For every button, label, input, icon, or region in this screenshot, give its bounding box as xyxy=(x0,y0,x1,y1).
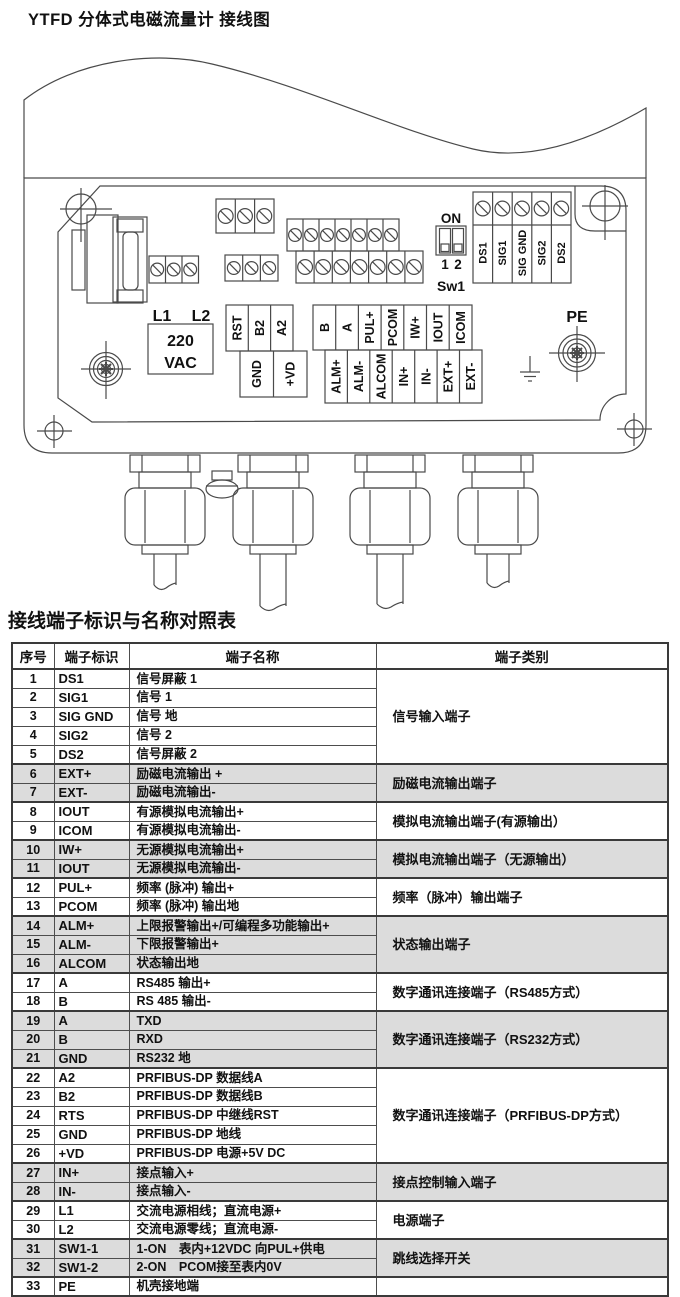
terminal-name: 信号 地 xyxy=(129,707,376,726)
power-l1-label: L1 xyxy=(153,308,172,325)
terminal-name: 有源模拟电流输出+ xyxy=(129,802,376,821)
row-no: 4 xyxy=(12,726,54,745)
terminal-label-pcom: PCOM xyxy=(386,309,400,347)
terminal-id: A2 xyxy=(54,1068,129,1087)
table-title: 接线端子标识与名称对照表 xyxy=(8,606,680,633)
cable-gland-4 xyxy=(458,455,538,587)
pe-screw xyxy=(549,326,605,382)
row-no: 12 xyxy=(12,878,54,897)
row-no: 25 xyxy=(12,1125,54,1144)
terminal-name: PRFIBUS-DP 中继线RST xyxy=(129,1106,376,1125)
terminal-id: EXT+ xyxy=(54,764,129,783)
terminal-category: 频率（脉冲）输出端子 xyxy=(376,878,668,916)
row-no: 18 xyxy=(12,992,54,1011)
terminal-category: 接点控制输入端子 xyxy=(376,1163,668,1201)
dip-switch-sw1 xyxy=(436,226,466,255)
terminal-id: L2 xyxy=(54,1220,129,1239)
terminal-id: SIG1 xyxy=(54,688,129,707)
table-row: 19ATXD数字通讯连接端子（RS232方式） xyxy=(12,1011,668,1030)
row-no: 29 xyxy=(12,1201,54,1220)
terminal-label-b: B xyxy=(318,323,332,332)
header-no: 序号 xyxy=(12,643,54,669)
terminal-label-ds1: DS1 xyxy=(478,242,490,263)
terminal-label-iout: IOUT xyxy=(431,312,445,342)
terminal-label-ext-minus: EXT- xyxy=(464,363,478,391)
cable-gland-2 xyxy=(233,455,313,610)
pe-label: PE xyxy=(566,309,588,326)
terminal-label-in-plus: IN+ xyxy=(397,367,411,387)
terminal-name: 无源模拟电流输出- xyxy=(129,859,376,878)
table-row: 8IOUT有源模拟电流输出+模拟电流输出端子(有源输出） xyxy=(12,802,668,821)
row-no: 19 xyxy=(12,1011,54,1030)
table-row: 22A2PRFIBUS-DP 数据线A数字通讯连接端子（PRFIBUS-DP方式… xyxy=(12,1068,668,1087)
row-no: 30 xyxy=(12,1220,54,1239)
terminal-name: 信号屏蔽 2 xyxy=(129,745,376,764)
terminal-block-io-upper xyxy=(287,219,399,251)
terminal-id: B xyxy=(54,1030,129,1049)
terminal-name: 机壳接地端 xyxy=(129,1277,376,1296)
terminal-label-icom: ICOM xyxy=(454,311,468,344)
terminal-name: 交流电源零线；直流电源- xyxy=(129,1220,376,1239)
terminal-name: RXD xyxy=(129,1030,376,1049)
terminal-name: RS485 输出+ xyxy=(129,973,376,992)
table-row: 17ARS485 输出+数字通讯连接端子（RS485方式） xyxy=(12,973,668,992)
terminal-name: 2-ON PCOM接至表内0V xyxy=(129,1258,376,1277)
terminal-id: SIG2 xyxy=(54,726,129,745)
terminal-id: RTS xyxy=(54,1106,129,1125)
row-no: 15 xyxy=(12,935,54,954)
terminal-id: PCOM xyxy=(54,897,129,916)
row-no: 2 xyxy=(12,688,54,707)
voltage-unit: VAC xyxy=(164,355,197,372)
table-row: 1DS1信号屏蔽 1信号输入端子 xyxy=(12,669,668,688)
terminal-label-sig2: SIG2 xyxy=(536,240,548,265)
terminal-label-vd: +VD xyxy=(284,362,298,387)
terminal-id: PUL+ xyxy=(54,878,129,897)
terminal-label-gnd: GND xyxy=(250,360,264,388)
table-header-row: 序号 端子标识 端子名称 端子类别 xyxy=(12,643,668,669)
terminal-name: 上限报警输出+/可编程多功能输出+ xyxy=(129,916,376,935)
dip-pos1-label: 1 xyxy=(441,257,449,272)
row-no: 27 xyxy=(12,1163,54,1182)
row-no: 23 xyxy=(12,1087,54,1106)
row-no: 17 xyxy=(12,973,54,992)
row-no: 33 xyxy=(12,1277,54,1296)
mounting-hole-bottom-left xyxy=(37,415,72,448)
row-no: 3 xyxy=(12,707,54,726)
row-no: 31 xyxy=(12,1239,54,1258)
terminal-id: DS1 xyxy=(54,669,129,688)
terminal-id: SW1-1 xyxy=(54,1239,129,1258)
terminal-id: IOUT xyxy=(54,859,129,878)
manual-page: { "page": { "title": "YTFD 分体式电磁流量计 接线图"… xyxy=(0,0,680,1297)
terminal-id: PE xyxy=(54,1277,129,1296)
terminal-category: 信号输入端子 xyxy=(376,669,668,764)
terminal-id: DS2 xyxy=(54,745,129,764)
terminal-label-iw: IW+ xyxy=(409,316,423,339)
terminal-id: IW+ xyxy=(54,840,129,859)
terminal-name: RS232 地 xyxy=(129,1049,376,1068)
terminal-name: 接点输入+ xyxy=(129,1163,376,1182)
row-no: 6 xyxy=(12,764,54,783)
terminal-id: IOUT xyxy=(54,802,129,821)
terminal-name: 接点输入- xyxy=(129,1182,376,1201)
row-no: 13 xyxy=(12,897,54,916)
terminal-label-rst: RST xyxy=(230,315,244,340)
terminal-name: 状态输出地 xyxy=(129,954,376,973)
terminal-id: +VD xyxy=(54,1144,129,1163)
terminal-id: SW1-2 xyxy=(54,1258,129,1277)
terminal-name: TXD xyxy=(129,1011,376,1030)
terminal-name: PRFIBUS-DP 数据线A xyxy=(129,1068,376,1087)
terminal-label-a: A xyxy=(340,323,354,332)
row-no: 22 xyxy=(12,1068,54,1087)
terminal-category: 数字通讯连接端子（PRFIBUS-DP方式） xyxy=(376,1068,668,1163)
header-id: 端子标识 xyxy=(54,643,129,669)
earth-ground-icon xyxy=(520,356,540,381)
voltage-value: 220 xyxy=(167,333,194,350)
terminal-id: SIG GND xyxy=(54,707,129,726)
terminal-id: EXT- xyxy=(54,783,129,802)
terminal-label-b2: B2 xyxy=(253,320,267,336)
panel-screw-left xyxy=(81,341,131,399)
row-no: 26 xyxy=(12,1144,54,1163)
terminal-category xyxy=(376,1277,668,1296)
terminal-category: 模拟电流输出端子（无源输出） xyxy=(376,840,668,878)
terminal-name: 励磁电流输出 + xyxy=(129,764,376,783)
terminal-name: 信号屏蔽 1 xyxy=(129,669,376,688)
terminal-category: 模拟电流输出端子(有源输出） xyxy=(376,802,668,840)
terminal-name: 有源模拟电流输出- xyxy=(129,821,376,840)
terminal-label-ext-plus: EXT+ xyxy=(442,361,456,393)
terminal-block-left xyxy=(149,256,199,283)
terminal-name: 1-ON 表内+12VDC 向PUL+供电 xyxy=(129,1239,376,1258)
terminal-label-alm-minus: ALM- xyxy=(352,361,366,392)
terminal-id: IN+ xyxy=(54,1163,129,1182)
table-row: 27IN+接点输入+接点控制输入端子 xyxy=(12,1163,668,1182)
terminal-name: 频率 (脉冲) 输出地 xyxy=(129,897,376,916)
row-no: 1 xyxy=(12,669,54,688)
terminal-id: ALM- xyxy=(54,935,129,954)
terminal-label-sig1: SIG1 xyxy=(497,240,509,265)
terminal-id: GND xyxy=(54,1125,129,1144)
terminal-id: A xyxy=(54,973,129,992)
row-no: 5 xyxy=(12,745,54,764)
terminal-label-pul: PUL+ xyxy=(363,311,377,343)
row-no: 9 xyxy=(12,821,54,840)
table-row: 14ALM+上限报警输出+/可编程多功能输出+状态输出端子 xyxy=(12,916,668,935)
terminal-name: 励磁电流输出- xyxy=(129,783,376,802)
row-no: 24 xyxy=(12,1106,54,1125)
dip-name-label: Sw1 xyxy=(437,278,465,294)
row-no: 11 xyxy=(12,859,54,878)
terminal-block-io-lower xyxy=(296,251,423,283)
header-category: 端子类别 xyxy=(376,643,668,669)
terminal-category: 跳线选择开关 xyxy=(376,1239,668,1277)
cable-gland-1 xyxy=(125,455,205,589)
terminal-label-a2: A2 xyxy=(275,320,289,336)
terminal-name: 无源模拟电流输出+ xyxy=(129,840,376,859)
fuse-holder xyxy=(72,215,147,303)
row-no: 7 xyxy=(12,783,54,802)
terminal-name: 频率 (脉冲) 输出+ xyxy=(129,878,376,897)
terminal-id: ALM+ xyxy=(54,916,129,935)
terminal-table-section: 接线端子标识与名称对照表 序号 端子标识 端子名称 端子类别 1DS1信号屏蔽 … xyxy=(0,606,680,1297)
terminal-id: B2 xyxy=(54,1087,129,1106)
terminal-id: L1 xyxy=(54,1201,129,1220)
cable-gland-3 xyxy=(350,455,430,608)
terminal-block-top-middle xyxy=(216,199,274,233)
terminal-block-middle xyxy=(225,255,278,281)
table-row: 12PUL+频率 (脉冲) 输出+频率（脉冲）输出端子 xyxy=(12,878,668,897)
terminal-id: ALCOM xyxy=(54,954,129,973)
row-no: 14 xyxy=(12,916,54,935)
terminal-label-in-minus: IN- xyxy=(419,368,433,385)
table-row: 6EXT+励磁电流输出 +励磁电流输出端子 xyxy=(12,764,668,783)
table-row: 10IW+无源模拟电流输出+模拟电流输出端子（无源输出） xyxy=(12,840,668,859)
table-row: 33PE机壳接地端 xyxy=(12,1277,668,1296)
terminal-id: GND xyxy=(54,1049,129,1068)
terminal-id: B xyxy=(54,992,129,1011)
row-no: 16 xyxy=(12,954,54,973)
mounting-hole-bottom-right xyxy=(617,413,652,446)
terminal-label-ds2: DS2 xyxy=(556,242,568,263)
terminal-category: 状态输出端子 xyxy=(376,916,668,973)
row-no: 21 xyxy=(12,1049,54,1068)
power-l2-label: L2 xyxy=(192,308,211,325)
table-row: 29L1交流电源相线；直流电源+电源端子 xyxy=(12,1201,668,1220)
terminal-name: 信号 1 xyxy=(129,688,376,707)
dip-pos2-label: 2 xyxy=(454,257,462,272)
terminal-category: 电源端子 xyxy=(376,1201,668,1239)
terminal-label-alcom: ALCOM xyxy=(374,354,388,400)
terminal-name: PRFIBUS-DP 电源+5V DC xyxy=(129,1144,376,1163)
terminal-name: RS 485 输出- xyxy=(129,992,376,1011)
row-no: 10 xyxy=(12,840,54,859)
terminal-category: 数字通讯连接端子（RS232方式） xyxy=(376,1011,668,1068)
terminal-table: 序号 端子标识 端子名称 端子类别 1DS1信号屏蔽 1信号输入端子 2SIG1… xyxy=(11,642,669,1297)
terminal-name: PRFIBUS-DP 地线 xyxy=(129,1125,376,1144)
terminal-name: PRFIBUS-DP 数据线B xyxy=(129,1087,376,1106)
row-no: 28 xyxy=(12,1182,54,1201)
row-no: 20 xyxy=(12,1030,54,1049)
dip-on-label: ON xyxy=(441,211,461,226)
table-row: 31SW1-11-ON 表内+12VDC 向PUL+供电跳线选择开关 xyxy=(12,1239,668,1258)
terminal-id: ICOM xyxy=(54,821,129,840)
terminal-id: IN- xyxy=(54,1182,129,1201)
terminal-category: 数字通讯连接端子（RS485方式） xyxy=(376,973,668,1011)
terminal-label-siggnd: SIG GND xyxy=(517,230,529,277)
terminal-name: 下限报警输出+ xyxy=(129,935,376,954)
wiring-diagram: L1 L2 220 VAC ON 1 2 Sw1 RST B2 A2 GND +… xyxy=(0,0,680,612)
row-no: 8 xyxy=(12,802,54,821)
row-no: 32 xyxy=(12,1258,54,1277)
terminal-id: A xyxy=(54,1011,129,1030)
terminal-label-alm-plus: ALM+ xyxy=(330,359,344,393)
header-name: 端子名称 xyxy=(129,643,376,669)
terminal-name: 信号 2 xyxy=(129,726,376,745)
terminal-category: 励磁电流输出端子 xyxy=(376,764,668,802)
terminal-name: 交流电源相线；直流电源+ xyxy=(129,1201,376,1220)
